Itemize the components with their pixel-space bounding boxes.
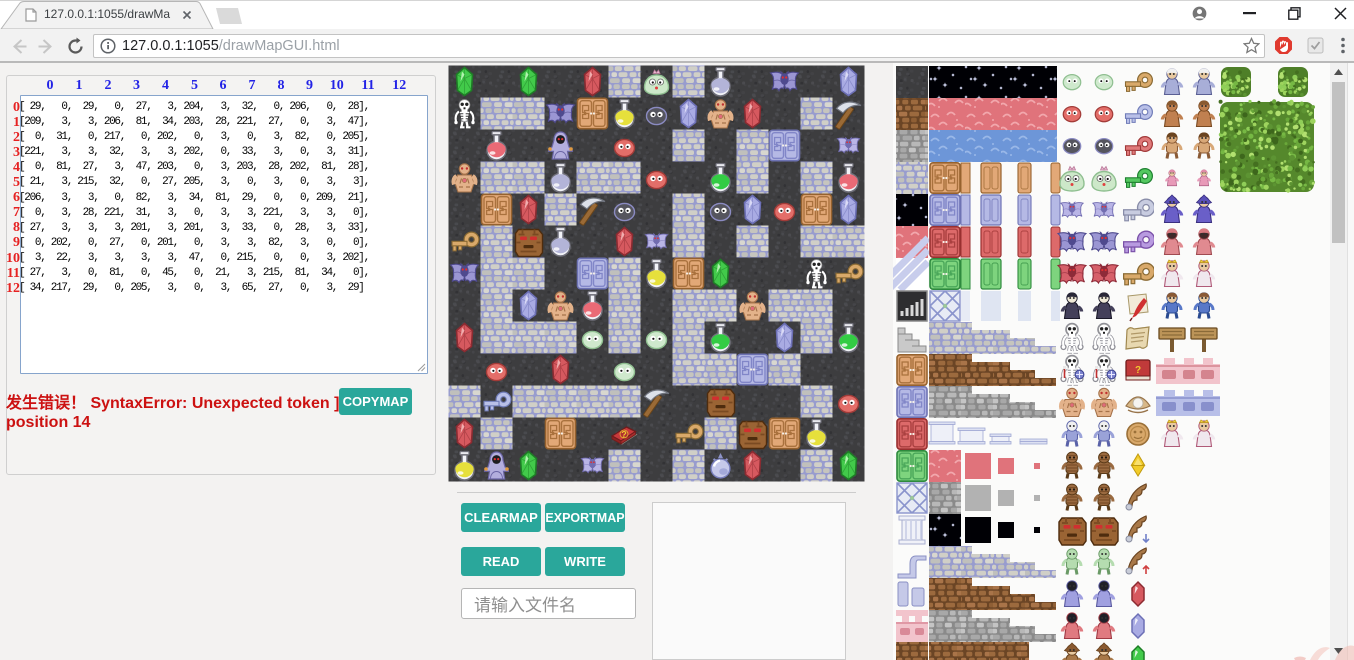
svg-text:?: ?	[1135, 365, 1141, 376]
